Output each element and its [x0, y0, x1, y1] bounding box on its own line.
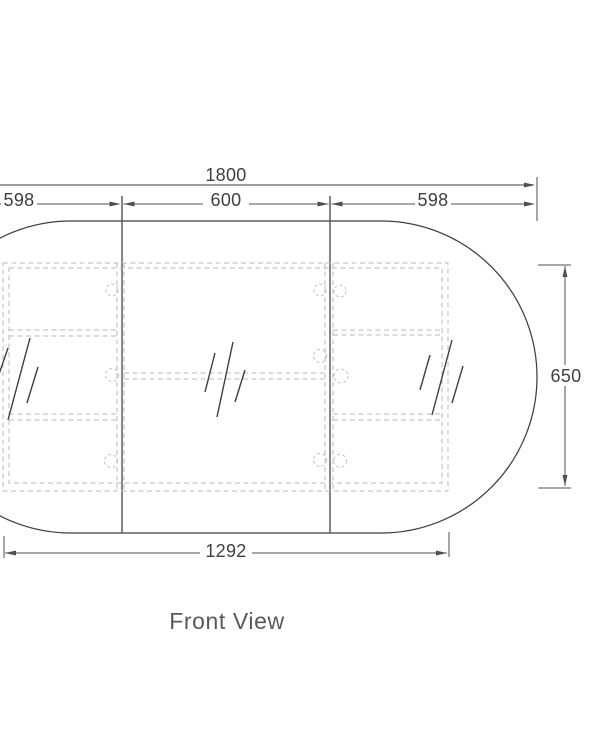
grain-mark [452, 366, 463, 403]
view-label: Front View [169, 608, 285, 634]
leaf-divider-lines [122, 196, 330, 533]
dowel-pin-circle [334, 369, 348, 383]
dimension-leaf-segments: 598 600 598 [0, 190, 535, 210]
technical-drawing: 1800 598 600 598 650 [0, 0, 600, 750]
arrowhead [524, 183, 535, 188]
grain-mark [432, 340, 452, 415]
arrowhead [563, 475, 568, 486]
dimension-text-center-segment: 600 [211, 190, 242, 210]
arrowhead [563, 266, 568, 277]
drawing-page: 1800 598 600 598 650 [0, 0, 600, 750]
dowel-pin-circle [334, 455, 347, 468]
arrowhead [332, 202, 343, 207]
dimension-text-overall-width: 1800 [205, 165, 246, 185]
arrowhead [524, 202, 535, 207]
arrowhead [436, 551, 447, 556]
dowel-pin-circle [106, 284, 118, 296]
dimension-text-right-segment: 598 [418, 190, 449, 210]
dimension-bottom-width: 1292 [4, 532, 449, 561]
grain-mark [0, 348, 8, 380]
grain-mark [235, 370, 245, 402]
dimension-text-side-height: 650 [551, 366, 582, 386]
arrowhead [318, 202, 329, 207]
grain-mark [8, 338, 30, 420]
grain-mark [420, 355, 430, 390]
dimension-overall-width: 1800 [0, 165, 537, 221]
arrowhead [110, 202, 121, 207]
arrowhead [124, 202, 135, 207]
dimension-text-left-segment: 598 [4, 190, 35, 210]
grain-mark [27, 367, 38, 403]
dowel-pin-circle [314, 284, 326, 296]
arrowhead [5, 551, 16, 556]
dimension-text-bottom-width: 1292 [205, 541, 246, 561]
dowel-pin-circle [105, 455, 118, 468]
dowel-pin-circle [334, 285, 346, 297]
grain-marks [0, 338, 463, 420]
dimension-side-height: 650 [538, 265, 585, 488]
